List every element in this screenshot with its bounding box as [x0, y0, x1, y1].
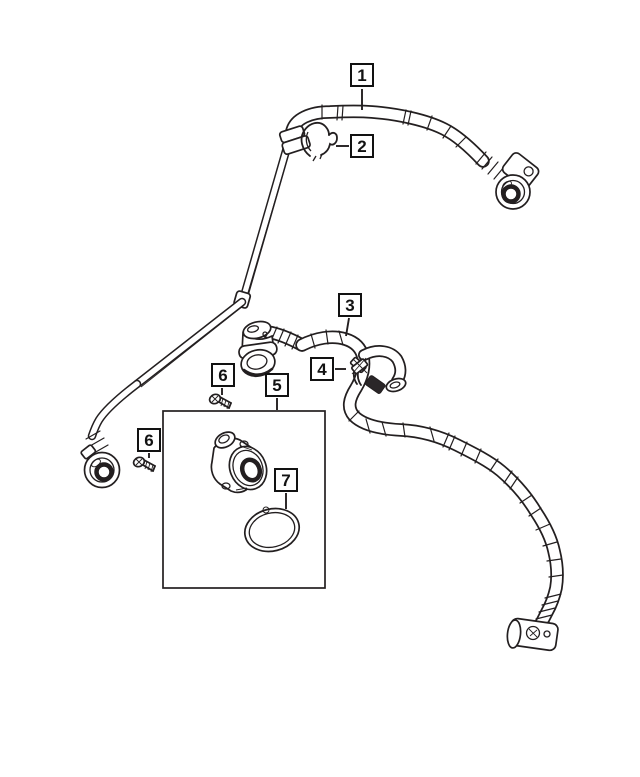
callout-3-hose[interactable]: 3 — [338, 293, 362, 317]
callout-5-valve[interactable]: 5 — [265, 373, 289, 397]
callout-4-clamp[interactable]: 4 — [310, 357, 334, 381]
diagram-artwork — [0, 0, 640, 777]
callout-6-screw-lower[interactable]: 6 — [137, 428, 161, 452]
callout-1-hose[interactable]: 1 — [350, 63, 374, 87]
parts-inset-box — [163, 411, 325, 588]
callout-7-oring[interactable]: 7 — [274, 468, 298, 492]
parts-diagram: 1 2 3 4 5 6 6 7 — [0, 0, 640, 777]
screw-6-lower-drawing — [132, 456, 155, 472]
callout-2-clip[interactable]: 2 — [350, 134, 374, 158]
screw-6-upper-drawing — [208, 393, 231, 409]
clip-2-drawing — [302, 123, 337, 161]
callout-6-screw-upper[interactable]: 6 — [211, 363, 235, 387]
